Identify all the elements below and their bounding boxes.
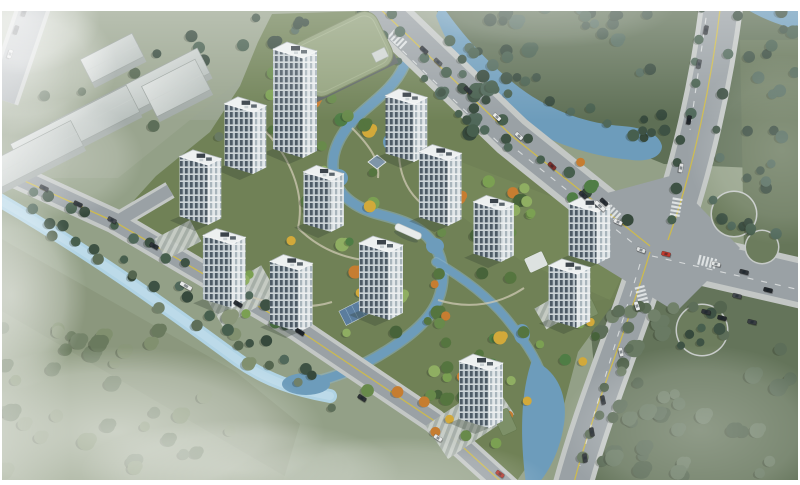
tree [428, 365, 440, 377]
tree [697, 324, 705, 332]
tree [499, 331, 508, 340]
tree [181, 258, 190, 267]
roof-equipment [566, 263, 575, 267]
pond [426, 238, 444, 254]
tree [659, 125, 670, 136]
roof-equipment [223, 238, 227, 240]
tree [688, 302, 698, 312]
tree [480, 125, 490, 135]
roof-equipment [197, 154, 206, 158]
tower-facade-sw [473, 202, 501, 262]
tower-facade-sw [569, 203, 598, 264]
tree [286, 236, 295, 245]
tree [491, 438, 502, 449]
tree [214, 132, 223, 141]
tree [536, 155, 545, 164]
tree [613, 305, 625, 317]
roof-equipment [329, 173, 335, 176]
tree [419, 396, 430, 407]
tree [442, 373, 451, 382]
tree [576, 158, 585, 167]
tree [328, 404, 336, 412]
tree [261, 335, 272, 346]
tree [204, 310, 215, 321]
roof-equipment [480, 364, 484, 367]
tree [89, 244, 100, 255]
tree [182, 291, 193, 302]
tree [445, 393, 454, 402]
tree [97, 335, 109, 347]
tower-facade-sw [459, 361, 489, 428]
tree [317, 141, 327, 151]
atmospheric-haze [0, 11, 800, 121]
tower-facade-sw [359, 243, 389, 320]
tree [599, 325, 609, 335]
tree [228, 309, 239, 320]
tower-facade-sw [270, 261, 299, 332]
tower-facade-sw [303, 172, 331, 232]
tree [294, 378, 303, 387]
tree [483, 175, 495, 187]
tree [648, 309, 661, 322]
roof-equipment [493, 204, 497, 206]
tower-facade-sw [180, 156, 209, 225]
roof-equipment [380, 246, 384, 249]
tree [191, 320, 202, 331]
tree [591, 332, 600, 341]
tree [476, 267, 488, 279]
roof-equipment [320, 169, 328, 173]
roof-equipment [220, 232, 229, 236]
aerial-masterplan-render [0, 0, 800, 485]
frame-left [0, 0, 2, 485]
roof-equipment [287, 258, 296, 262]
roof-equipment [586, 201, 595, 205]
tree [342, 329, 350, 337]
tree [671, 183, 683, 195]
tree [441, 337, 451, 347]
tree [675, 135, 685, 145]
roof-equipment [588, 206, 592, 208]
tree [247, 357, 256, 366]
roof-equipment [377, 240, 386, 245]
tree [364, 200, 376, 212]
roof-equipment [477, 358, 486, 363]
tower-facade-se [232, 237, 246, 308]
roof-equipment [490, 199, 498, 203]
tree [245, 291, 253, 299]
tree [589, 180, 598, 189]
tree [345, 238, 353, 246]
tree [369, 168, 378, 177]
tree [241, 309, 250, 318]
tower-facade-se [299, 263, 313, 332]
tree [467, 124, 480, 137]
tree [148, 281, 159, 292]
tree [564, 167, 575, 178]
tower-facade-se [389, 245, 403, 320]
tree [523, 134, 533, 144]
tree [153, 302, 164, 313]
tree [504, 143, 513, 152]
tree [157, 324, 167, 334]
tower-facade-se [208, 158, 221, 225]
tree [222, 324, 234, 336]
tree [521, 196, 532, 207]
tree [667, 215, 676, 224]
tower-facade-se [448, 153, 462, 226]
tree [433, 268, 444, 279]
tree [92, 253, 103, 264]
tree [361, 384, 374, 397]
frame-bottom [0, 480, 800, 485]
roof-equipment [499, 203, 505, 206]
tree [392, 386, 404, 398]
tree [128, 270, 137, 279]
tower-facade-sw [419, 151, 448, 226]
tree [507, 376, 516, 385]
scene-svg [0, 0, 800, 485]
tree [307, 370, 317, 380]
tree [441, 361, 453, 373]
tree [245, 339, 254, 348]
roof-equipment [297, 262, 303, 265]
tree [434, 318, 445, 329]
roof-equipment [575, 266, 581, 269]
tree [774, 343, 787, 356]
tree [501, 134, 511, 144]
tree [559, 354, 571, 366]
tree [647, 128, 656, 137]
roof-equipment [436, 148, 445, 152]
tree [527, 209, 536, 218]
tree [536, 340, 544, 348]
tree [578, 357, 587, 366]
tree [431, 280, 439, 288]
tree [685, 330, 694, 339]
tower-facade-sw [549, 265, 578, 328]
tree [714, 323, 726, 335]
tower-facade-se [597, 205, 610, 264]
tree [523, 396, 532, 405]
tree [390, 326, 403, 339]
tree [424, 317, 432, 325]
tower-facade-sw [203, 235, 232, 308]
tower-facade-se [331, 174, 344, 232]
tree [627, 129, 639, 141]
roof-equipment [230, 236, 236, 239]
roof-equipment [487, 362, 493, 366]
tree [622, 214, 634, 226]
tree [234, 341, 244, 351]
tree [518, 326, 530, 338]
roof-equipment [323, 174, 327, 176]
tree [120, 255, 128, 263]
tree [633, 340, 645, 352]
roof-equipment [199, 159, 203, 161]
tree [667, 302, 679, 314]
tree [150, 337, 159, 346]
tower-facade-se [577, 267, 590, 328]
tree [625, 344, 634, 353]
frame-top [0, 0, 800, 11]
roof-equipment [290, 264, 294, 266]
roof-equipment [206, 157, 212, 160]
roof-equipment [387, 244, 393, 248]
tower-facade-se [489, 363, 503, 428]
roof-equipment [568, 268, 572, 270]
roof-equipment [439, 154, 443, 156]
tree [622, 322, 634, 334]
tree [128, 233, 139, 244]
tree [504, 272, 516, 284]
tree [279, 355, 289, 365]
tree [160, 253, 171, 264]
tree [265, 361, 274, 370]
tree [519, 183, 529, 193]
tree [148, 120, 160, 132]
tower-facade-se [501, 204, 514, 262]
roof-equipment [446, 152, 452, 155]
tree [661, 326, 672, 337]
